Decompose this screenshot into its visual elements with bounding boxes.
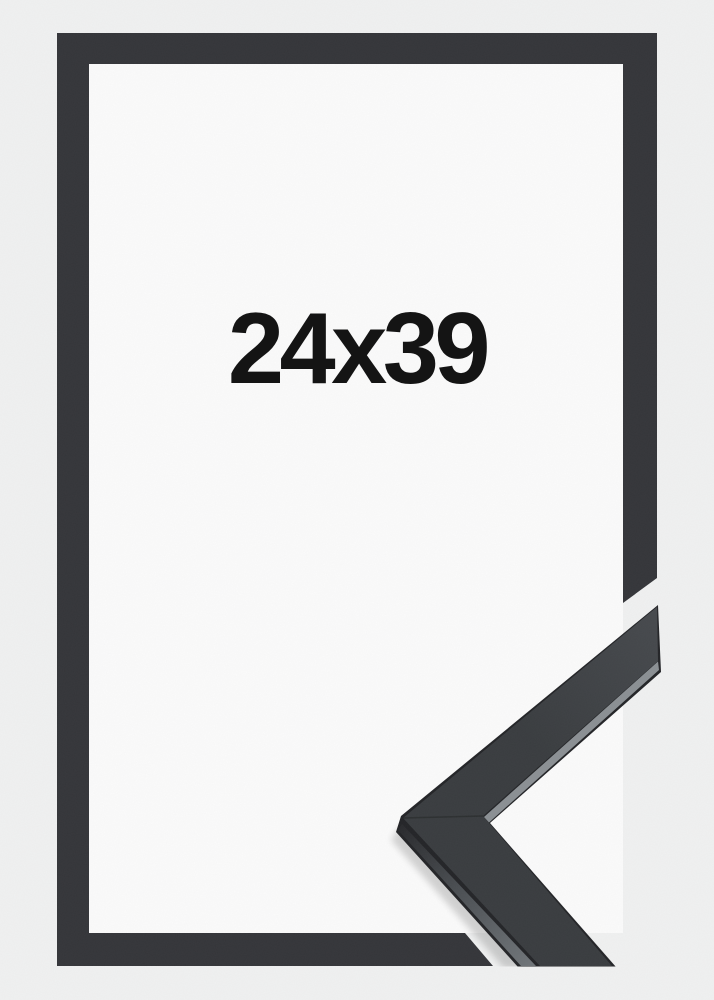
frame-size-label: 24x39 bbox=[0, 299, 714, 400]
product-image: 24x39 bbox=[0, 0, 714, 1000]
photo-grain-overlay bbox=[0, 0, 714, 1000]
frame-illustration bbox=[0, 0, 714, 1000]
